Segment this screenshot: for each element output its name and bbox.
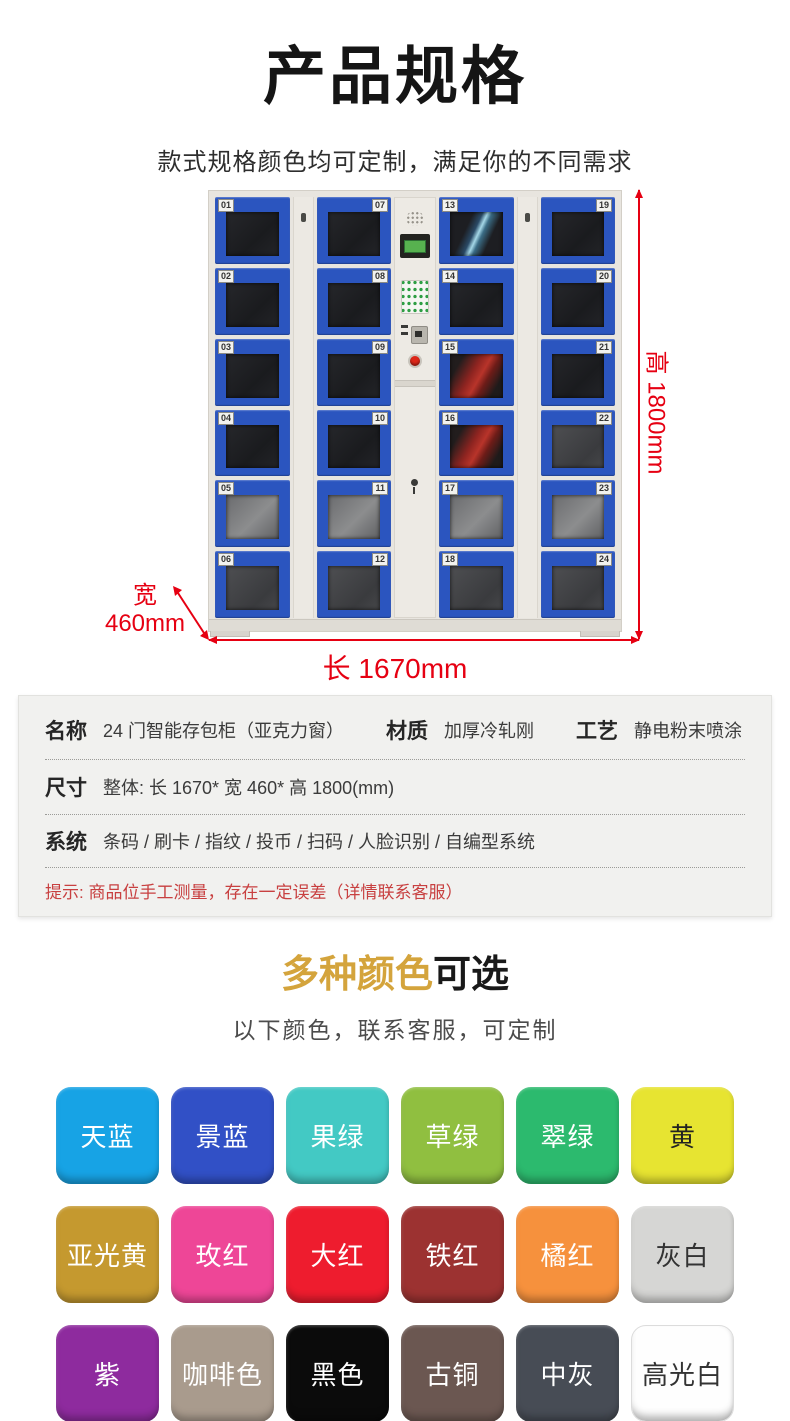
color-swatch-label: 玫红 [195, 1236, 249, 1273]
colors-section-subtitle: 以下颜色，联系客服，可定制 [0, 1011, 790, 1045]
locker-illustration: 010203040506 070809101112 13141516171 [0, 183, 790, 691]
color-swatch-label: 黄 [669, 1117, 696, 1154]
door-window [450, 566, 503, 610]
door-window [552, 566, 605, 610]
spec-row-name: 名称 24 门智能存包柜（亚克力窗） 材质 加厚冷轧刚 工艺 静电粉末喷涂 [45, 696, 745, 760]
spec-table: 名称 24 门智能存包柜（亚克力窗） 材质 加厚冷轧刚 工艺 静电粉末喷涂 尺寸… [18, 695, 772, 917]
spec-system-label: 系统 [45, 826, 87, 856]
door-window [450, 212, 503, 256]
door-window [328, 566, 381, 610]
color-swatch: 铁红 [401, 1206, 504, 1303]
locker-door: 17 [439, 480, 514, 547]
door-number-label: 19 [596, 199, 612, 212]
locker-door: 15 [439, 339, 514, 406]
door-number-label: 07 [372, 199, 388, 212]
locker-lock-strip [517, 197, 538, 618]
door-window [450, 495, 503, 539]
length-dimension-label: 长 1670mm [0, 647, 790, 687]
keypad [401, 280, 429, 314]
spec-group-craft: 工艺 静电粉末喷涂 [576, 715, 742, 745]
control-panel-column [394, 197, 436, 618]
color-swatch-label: 果绿 [310, 1117, 364, 1154]
spec-row-system: 系统 条码 / 刷卡 / 指纹 / 投币 / 扫码 / 人脸识别 / 自编型系统 [45, 815, 745, 868]
page-title: 产品规格 [0, 0, 790, 110]
door-window [450, 425, 503, 469]
color-swatch: 黑色 [286, 1325, 389, 1421]
spec-craft-value: 静电粉末喷涂 [634, 717, 742, 743]
spec-name-value: 24 门智能存包柜（亚克力窗） [103, 717, 344, 743]
locker-door: 13 [439, 197, 514, 264]
coin-slot-unit [400, 323, 430, 345]
spec-size-label: 尺寸 [45, 772, 87, 802]
color-swatch: 高光白 [631, 1325, 734, 1421]
lock-icon [525, 213, 530, 222]
red-button [410, 356, 420, 366]
door-window [552, 212, 605, 256]
color-swatch-label: 高光白 [642, 1355, 723, 1392]
door-window [552, 283, 605, 327]
width-dimension-arrow [170, 585, 212, 641]
locker-lock-strip [293, 197, 314, 618]
door-window [226, 354, 279, 398]
door-number-label: 18 [442, 553, 458, 566]
door-window [328, 425, 381, 469]
spec-material-label: 材质 [386, 715, 428, 745]
door-window [328, 495, 381, 539]
colors-title-highlight: 多种颜色 [281, 954, 433, 996]
color-swatch-label: 灰白 [655, 1236, 709, 1273]
door-number-label: 22 [596, 412, 612, 425]
lcd-display [400, 234, 430, 258]
height-dimension-line [638, 190, 640, 639]
locker-door: 09 [317, 339, 392, 406]
color-swatch: 大红 [286, 1206, 389, 1303]
color-swatch: 黄 [631, 1087, 734, 1184]
locker-door: 08 [317, 268, 392, 335]
color-swatch-label: 黑色 [310, 1355, 364, 1392]
locker-door-column-3: 131415161718 [439, 197, 514, 618]
door-number-label: 11 [372, 482, 388, 495]
center-door [395, 387, 435, 617]
door-number-label: 16 [442, 412, 458, 425]
locker-door: 16 [439, 410, 514, 477]
color-swatch: 咖啡色 [171, 1325, 274, 1421]
door-window [552, 425, 605, 469]
spec-group-material: 材质 加厚冷轧刚 [386, 715, 534, 745]
color-swatch-grid: 天蓝景蓝果绿草绿翠绿黄亚光黄玫红大红铁红橘红灰白紫咖啡色黑色古铜中灰高光白 [56, 1087, 734, 1421]
locker-door: 03 [215, 339, 290, 406]
door-number-label: 14 [442, 270, 458, 283]
colors-title-rest: 可选 [433, 954, 509, 996]
color-swatch: 亚光黄 [56, 1206, 159, 1303]
coin-slot-icon [411, 326, 428, 344]
door-window [226, 283, 279, 327]
color-swatch-label: 翠绿 [540, 1117, 594, 1154]
door-window [226, 425, 279, 469]
panel-seam [395, 380, 435, 387]
locker-door: 02 [215, 268, 290, 335]
door-number-label: 01 [218, 199, 234, 212]
door-window [552, 354, 605, 398]
door-number-label: 24 [596, 553, 612, 566]
door-window [328, 283, 381, 327]
door-number-label: 09 [372, 341, 388, 354]
door-number-label: 23 [596, 482, 612, 495]
locker-door: 07 [317, 197, 392, 264]
color-swatch-label: 亚光黄 [67, 1236, 148, 1273]
color-swatch: 果绿 [286, 1087, 389, 1184]
locker-door: 12 [317, 551, 392, 618]
spec-row-size: 尺寸 整体: 长 1670* 宽 460* 高 1800(mm) [45, 760, 745, 815]
door-window [328, 212, 381, 256]
color-swatch: 古铜 [401, 1325, 504, 1421]
door-window [226, 212, 279, 256]
locker-door-column-1: 010203040506 [215, 197, 290, 618]
door-window [552, 495, 605, 539]
locker-door: 19 [541, 197, 616, 264]
door-number-label: 03 [218, 341, 234, 354]
locker-door: 11 [317, 480, 392, 547]
door-window [450, 283, 503, 327]
locker-door: 22 [541, 410, 616, 477]
color-swatch-label: 草绿 [425, 1117, 479, 1154]
locker-door: 20 [541, 268, 616, 335]
product-spec-page: 产品规格 款式规格颜色均可定制，满足你的不同需求 010203040506 07… [0, 0, 790, 1421]
spec-craft-label: 工艺 [576, 715, 618, 745]
door-window [328, 354, 381, 398]
color-swatch-label: 古铜 [425, 1355, 479, 1392]
locker-door: 21 [541, 339, 616, 406]
door-number-label: 05 [218, 482, 234, 495]
locker-door: 01 [215, 197, 290, 264]
color-swatch: 翠绿 [516, 1087, 619, 1184]
spec-system-value: 条码 / 刷卡 / 指纹 / 投币 / 扫码 / 人脸识别 / 自编型系统 [103, 828, 535, 854]
door-number-label: 08 [372, 270, 388, 283]
color-swatch: 中灰 [516, 1325, 619, 1421]
height-dimension-label: 高 1800mm [642, 346, 677, 480]
spec-row-notice: 提示: 商品位手工测量，存在一定误差（详情联系客服） [45, 868, 745, 916]
colors-section-title: 多种颜色可选 [0, 943, 790, 998]
color-swatch: 景蓝 [171, 1087, 274, 1184]
color-swatch: 玫红 [171, 1206, 274, 1303]
color-swatch-label: 咖啡色 [182, 1355, 263, 1392]
color-swatch-label: 橘红 [540, 1236, 594, 1273]
color-swatch: 灰白 [631, 1206, 734, 1303]
lock-icon [301, 213, 306, 222]
spec-size-value: 整体: 长 1670* 宽 460* 高 1800(mm) [103, 774, 394, 800]
color-swatch-label: 紫 [94, 1355, 121, 1392]
color-swatch: 橘红 [516, 1206, 619, 1303]
lcd-screen [404, 240, 426, 253]
color-swatch-label: 中灰 [540, 1355, 594, 1392]
door-window [226, 495, 279, 539]
door-number-label: 15 [442, 341, 458, 354]
color-swatch: 草绿 [401, 1087, 504, 1184]
locker-door: 18 [439, 551, 514, 618]
door-number-label: 06 [218, 553, 234, 566]
door-number-label: 17 [442, 482, 458, 495]
keyhole-icon [411, 479, 418, 486]
locker-door: 05 [215, 480, 290, 547]
locker-door: 23 [541, 480, 616, 547]
color-swatch-label: 大红 [310, 1236, 364, 1273]
color-swatch-label: 天蓝 [80, 1117, 134, 1154]
coin-ticks-icon [401, 325, 408, 339]
locker-door: 06 [215, 551, 290, 618]
spec-group-name: 名称 24 门智能存包柜（亚克力窗） [45, 715, 344, 745]
door-number-label: 02 [218, 270, 234, 283]
color-swatch: 天蓝 [56, 1087, 159, 1184]
page-subtitle: 款式规格颜色均可定制，满足你的不同需求 [0, 142, 790, 177]
spec-name-label: 名称 [45, 715, 87, 745]
color-swatch: 紫 [56, 1325, 159, 1421]
speaker-icon [406, 211, 424, 226]
locker-door: 24 [541, 551, 616, 618]
spec-material-value: 加厚冷轧刚 [444, 717, 534, 743]
door-number-label: 21 [596, 341, 612, 354]
door-number-label: 12 [372, 553, 388, 566]
spec-notice-text: 提示: 商品位手工测量，存在一定误差（详情联系客服） [45, 878, 462, 903]
length-dimension-line [209, 639, 639, 641]
locker-door-column-4: 192021222324 [541, 197, 616, 618]
locker-door: 04 [215, 410, 290, 477]
locker-door: 10 [317, 410, 392, 477]
door-window [226, 566, 279, 610]
locker-door-column-2: 070809101112 [317, 197, 392, 618]
door-number-label: 13 [442, 199, 458, 212]
door-number-label: 20 [596, 270, 612, 283]
color-swatch-label: 铁红 [425, 1236, 479, 1273]
door-window [450, 354, 503, 398]
door-number-label: 10 [372, 412, 388, 425]
door-number-label: 04 [218, 412, 234, 425]
locker-door: 14 [439, 268, 514, 335]
cabinet-foot-right [580, 628, 620, 637]
color-swatch-label: 景蓝 [195, 1117, 249, 1154]
locker-cabinet: 010203040506 070809101112 13141516171 [208, 190, 622, 632]
